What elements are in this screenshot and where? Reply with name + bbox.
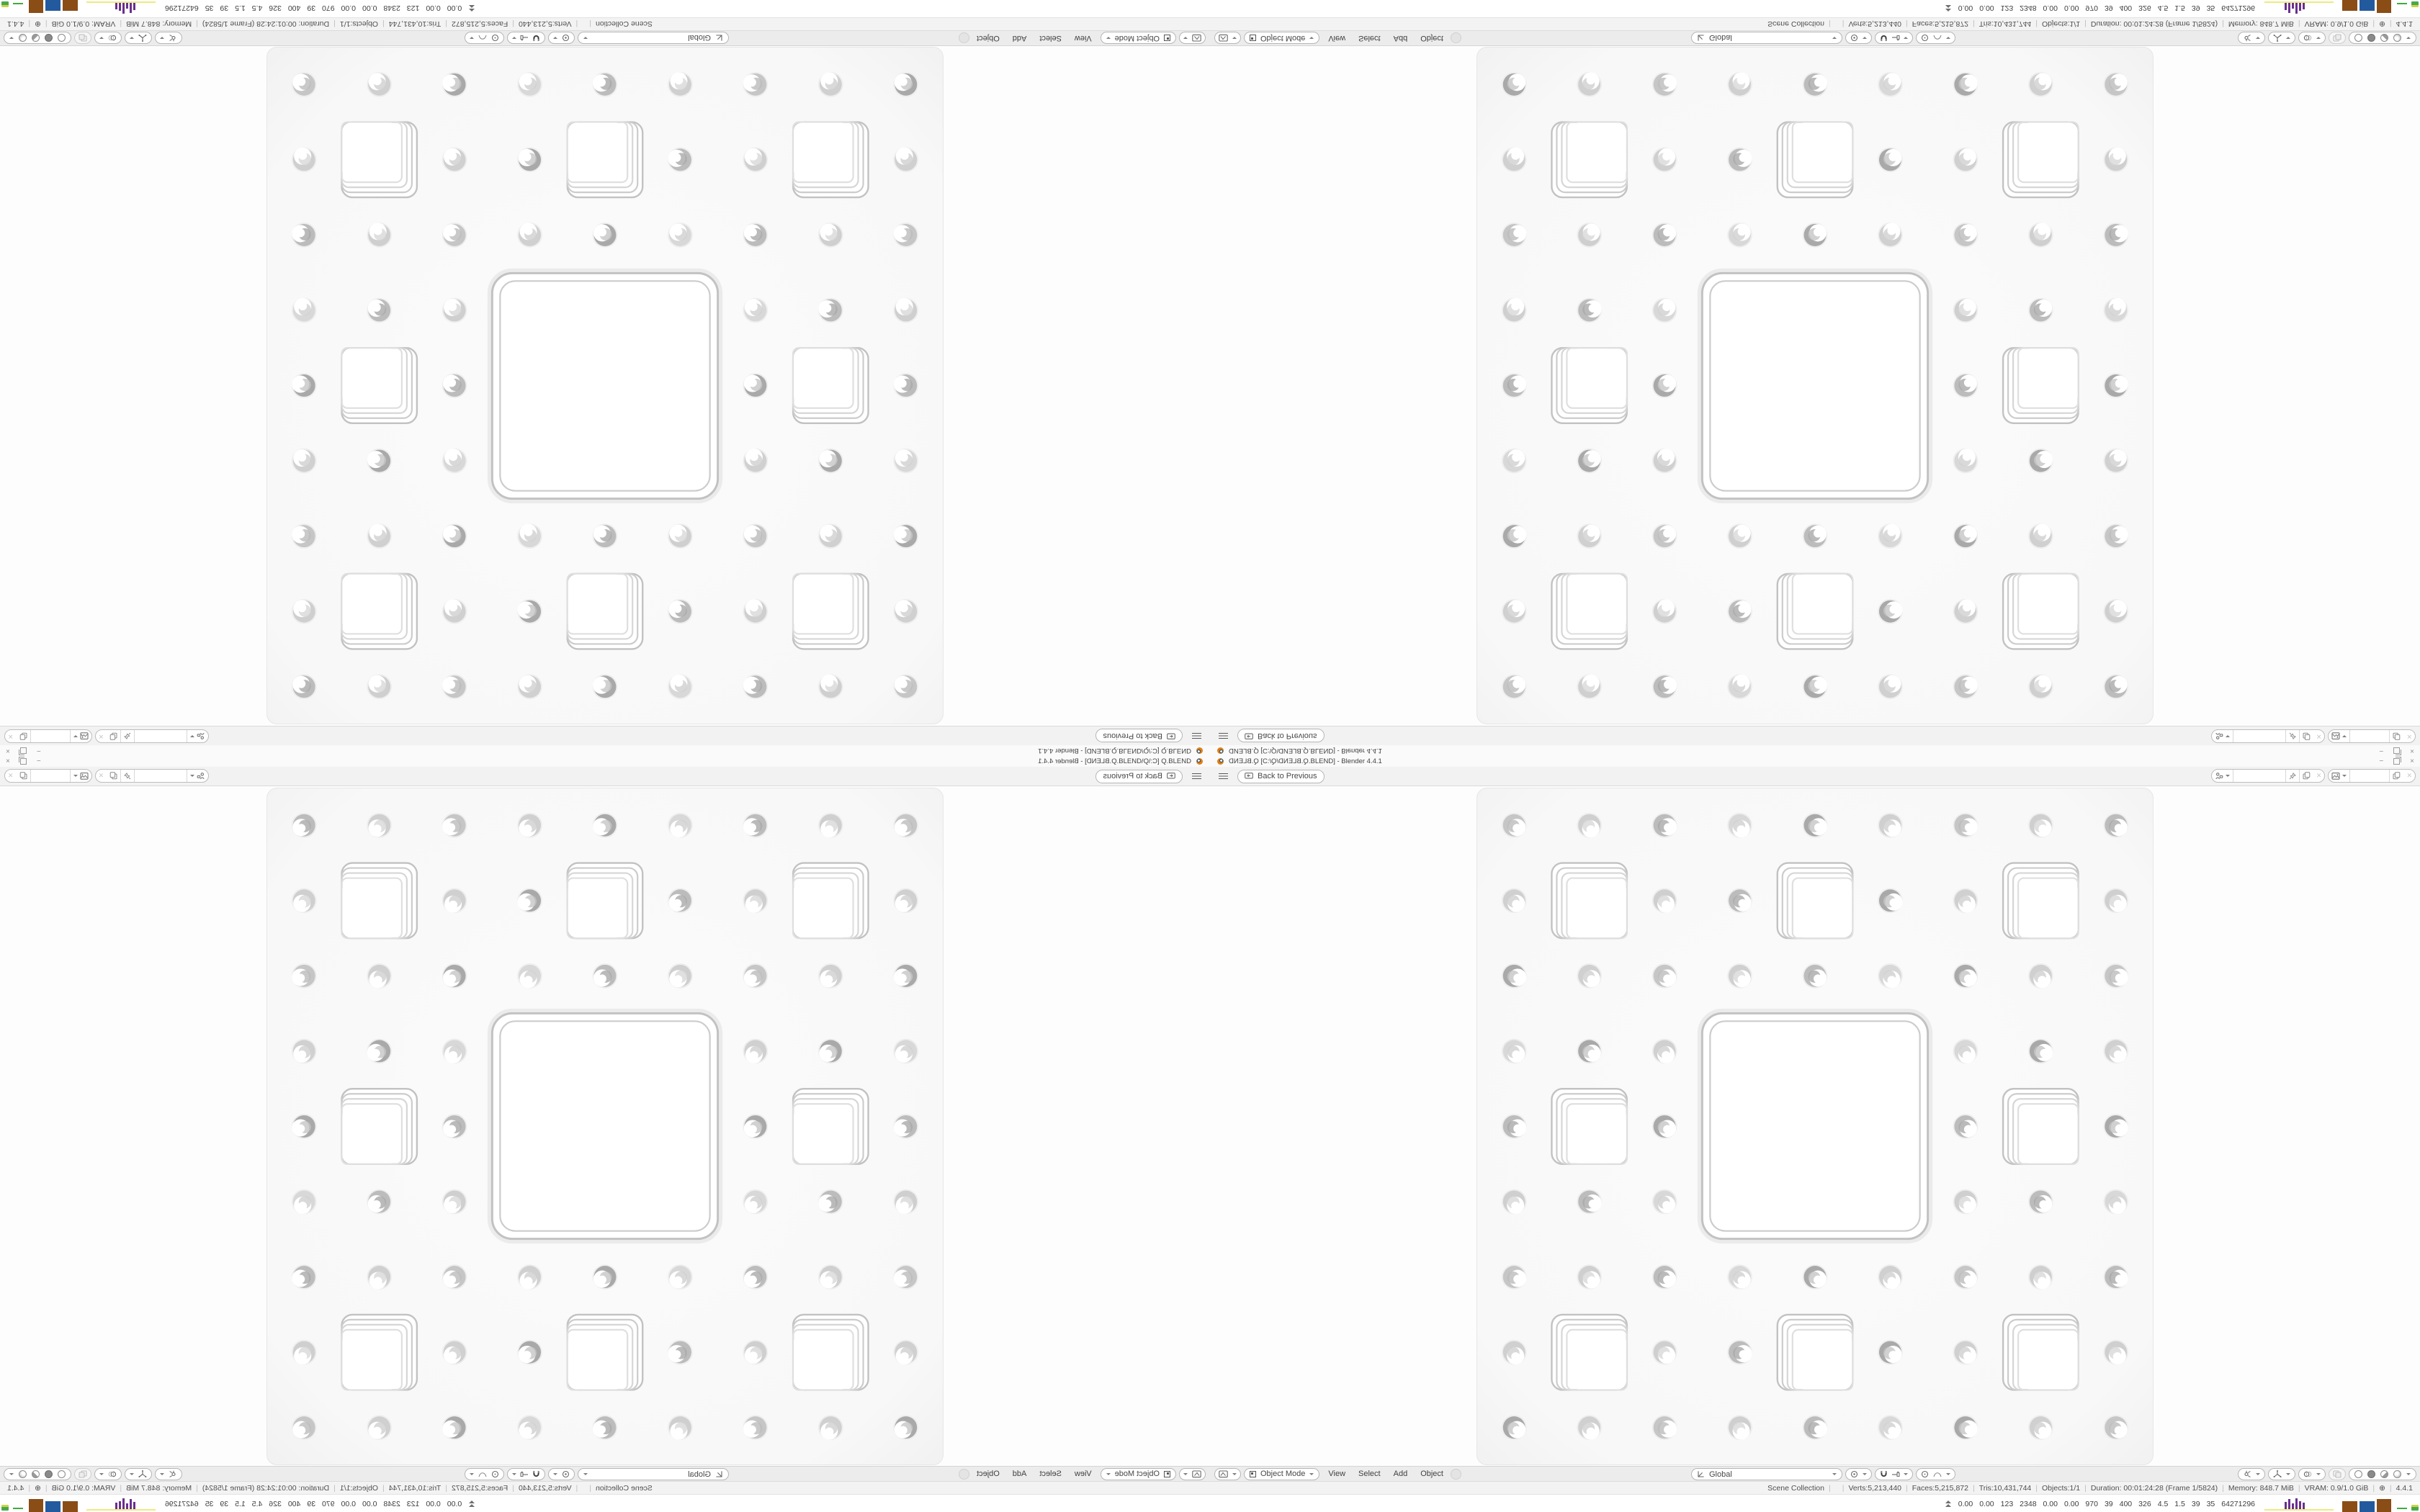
copy-icon — [2303, 732, 2311, 740]
monitor-value: 35 — [2207, 1500, 2215, 1508]
separator: | — [589, 20, 591, 29]
scene-browse-segment[interactable] — [2212, 730, 2233, 742]
remove-viewlayer-button[interactable]: ✕ — [2403, 732, 2415, 740]
shading-mode-switcher[interactable] — [4, 32, 71, 44]
taskbar-app-blocks — [29, 1499, 78, 1512]
scene-selector[interactable]: ✕ — [95, 769, 210, 783]
frametime-graph — [2264, 1497, 2334, 1512]
status-item: 4.4.1 — [2396, 1484, 2413, 1493]
separator: | — [45, 20, 48, 29]
scene-browse-segment[interactable] — [2212, 770, 2233, 782]
transform-orientation-dropdown[interactable]: Global — [1691, 1468, 1842, 1480]
menu-add[interactable]: Add — [1013, 34, 1027, 42]
back-to-previous-button[interactable]: Back to Previous — [1095, 729, 1183, 743]
status-item: Duration: 00:01:24:28 (Frame 1/5824) — [202, 20, 329, 29]
monitor-value: 1.5 — [2174, 4, 2185, 13]
orientation-axes-icon — [1697, 34, 1705, 42]
tray-mini-icon[interactable] — [1, 1, 9, 7]
xray-icon — [79, 1470, 87, 1478]
monitor-value: 0.00 — [2064, 1500, 2079, 1508]
overlays-dropdown[interactable] — [94, 32, 122, 44]
scene-icon — [197, 772, 205, 780]
3d-viewport[interactable] — [1210, 46, 2420, 726]
menu-hamburger-icon[interactable] — [1192, 773, 1201, 780]
rendered-shading-icon[interactable] — [2393, 34, 2401, 42]
xray-toggle[interactable] — [2329, 1468, 2346, 1480]
viewlayer-name-field[interactable] — [2349, 730, 2389, 742]
minimize-button[interactable]: − — [37, 747, 41, 755]
menger-sponge-render — [266, 47, 944, 724]
expand-up-icon[interactable] — [469, 1500, 475, 1507]
brown-block-icon[interactable] — [2342, 0, 2357, 11]
blue-block-icon[interactable] — [2359, 0, 2375, 11]
viewlayer-icon — [2331, 732, 2340, 741]
back-to-previous-button[interactable]: Back to Previous — [1237, 770, 1325, 783]
proportional-editing-controls[interactable] — [465, 32, 504, 44]
viewport-header: Object Mode ViewSelectAddObject Global — [0, 31, 1210, 46]
remove-viewlayer-button[interactable]: ✕ — [2403, 772, 2415, 780]
viewlayer-name-field[interactable] — [31, 730, 71, 742]
status-item: Faces:5,215,872 — [452, 1484, 508, 1493]
scene-name-field[interactable] — [2233, 770, 2285, 782]
chevron-down-icon — [2342, 775, 2347, 777]
viewlayer-icon — [80, 732, 89, 741]
snapping-controls[interactable] — [507, 32, 545, 44]
scene-name-field[interactable] — [135, 730, 187, 742]
tray-mini-icon[interactable] — [2411, 1, 2419, 7]
gizmo-axes-icon — [2273, 34, 2282, 42]
chevron-down-icon — [160, 1473, 164, 1475]
restore-button[interactable] — [20, 747, 27, 754]
status-item: Scene Collection — [596, 20, 653, 29]
menu-view[interactable]: View — [1075, 34, 1092, 42]
editor-3d-viewport-icon — [1219, 1470, 1228, 1478]
status-bar: Scene Collection||Verts:5,213,440|Faces:… — [0, 1481, 1210, 1494]
scene-icon — [197, 732, 205, 741]
monitor-value: 2348 — [383, 1500, 400, 1508]
copy-icon — [19, 732, 27, 740]
3d-viewport[interactable] — [1210, 786, 2420, 1466]
scene-browse-segment[interactable] — [187, 730, 208, 742]
copy-icon — [2303, 772, 2311, 780]
chevron-down-icon — [1863, 1473, 1867, 1475]
viewlayer-browse-segment[interactable] — [71, 730, 91, 742]
brown-block-icon[interactable] — [29, 1499, 43, 1512]
separator: | — [512, 1484, 514, 1493]
monitor-value: 123 — [2001, 4, 2014, 13]
menu-select[interactable]: Select — [1039, 34, 1062, 42]
monitor-value: 35 — [2207, 4, 2215, 13]
proportional-editing-controls[interactable] — [1916, 32, 1955, 44]
snapping-controls[interactable] — [1875, 32, 1913, 44]
mode-selector[interactable]: Object Mode — [1101, 1468, 1176, 1480]
brown-block-icon[interactable] — [29, 0, 43, 13]
shading-mode-switcher[interactable] — [2349, 1468, 2416, 1480]
monitor-value: 64271296 — [165, 4, 199, 13]
editor-type-button[interactable] — [1214, 1468, 1241, 1480]
quadrant-top-left-mirrored: Q.BLEND [C:\Q\Q.BLEND.BLEND] - Blender 4… — [0, 0, 1210, 756]
back-to-previous-button[interactable]: Back to Previous — [1237, 729, 1325, 743]
snap-target-icon — [1891, 35, 1900, 42]
gizmo-visibility-icon — [169, 34, 177, 42]
viewlayer-name-field[interactable] — [2349, 770, 2389, 782]
quadrant-bottom-right: Q.BLEND [C:\Q\Q.BLEND.BLEND] - Blender 4… — [1210, 756, 2420, 1512]
separator: | — [576, 20, 578, 29]
show-gizmo-toggle[interactable] — [155, 1468, 182, 1480]
separator: | — [589, 1484, 591, 1493]
viewlayer-selector[interactable]: ✕ — [4, 769, 92, 783]
proportional-editing-controls[interactable] — [465, 1468, 504, 1480]
close-button[interactable]: × — [6, 747, 10, 755]
monitor-value: 35 — [205, 1500, 214, 1508]
restore-button[interactable] — [2393, 747, 2400, 754]
monitor-value: 0.00 — [426, 1500, 440, 1508]
monitor-value: 2348 — [383, 4, 400, 13]
editor-type-button[interactable] — [1179, 1468, 1206, 1480]
xray-toggle[interactable] — [2329, 32, 2346, 44]
proportional-editing-controls[interactable] — [1916, 1468, 1955, 1480]
rendered-shading-icon[interactable] — [2393, 1470, 2401, 1478]
wireframe-shading-icon[interactable] — [2354, 1470, 2362, 1478]
overlays-dropdown[interactable] — [2298, 32, 2326, 44]
pivot-point-dropdown[interactable] — [1845, 32, 1872, 44]
menu-select[interactable]: Select — [1039, 1470, 1062, 1478]
menu-view[interactable]: View — [1075, 1470, 1092, 1478]
editor-type-button[interactable] — [1214, 32, 1241, 45]
taskbar-app-blocks — [2342, 1499, 2391, 1512]
restore-button[interactable] — [2393, 758, 2400, 765]
rendered-shading-icon[interactable] — [19, 1470, 27, 1478]
show-gizmo-toggle[interactable] — [2238, 32, 2265, 44]
status-item: Faces:5,215,872 — [1912, 20, 1968, 29]
transform-orientation-dropdown[interactable]: Global — [578, 32, 729, 44]
back-screen-icon — [1245, 773, 1253, 780]
scene-pin-button[interactable] — [121, 770, 135, 782]
menu-hamburger-icon[interactable] — [1219, 773, 1228, 780]
status-item: Memory: 848.7 MiB — [2228, 1484, 2294, 1493]
separator: | — [1829, 1484, 1831, 1493]
disabled-tool-icon — [1451, 33, 1461, 44]
status-item: Tris:10,431,744 — [1979, 1484, 2032, 1493]
viewlayer-selector[interactable]: ✕ — [2328, 769, 2416, 783]
new-scene-button[interactable] — [107, 770, 121, 782]
chevron-down-icon — [99, 1473, 104, 1475]
chevron-down-icon — [1183, 1473, 1188, 1475]
scene-name-field[interactable] — [2233, 730, 2285, 742]
pivot-icon — [562, 34, 570, 42]
monitor-value: 64271296 — [2221, 4, 2255, 13]
menu-add[interactable]: Add — [1394, 34, 1408, 42]
material-preview-shading-icon[interactable] — [2380, 34, 2388, 42]
blender-logo-icon — [1217, 758, 1224, 765]
menu-add[interactable]: Add — [1013, 1470, 1027, 1478]
separator: | — [196, 1484, 198, 1493]
monitor-value: 0.00 — [341, 4, 356, 13]
menu-select[interactable]: Select — [1358, 34, 1381, 42]
show-gizmo-toggle[interactable] — [2238, 1468, 2265, 1480]
menu-hamburger-icon[interactable] — [1219, 733, 1228, 739]
scene-pin-button[interactable] — [121, 730, 135, 742]
close-button[interactable]: × — [6, 758, 10, 765]
monitor-value: 4.5 — [252, 4, 263, 13]
window-title-bar: Q.BLEND [C:\Q\Q.BLEND.BLEND] - Blender 4… — [0, 756, 1210, 767]
mode-selector[interactable]: Object Mode — [1101, 32, 1176, 45]
pivot-point-dropdown[interactable] — [548, 1468, 575, 1480]
status-bar: Scene Collection||Verts:5,213,440|Faces:… — [0, 18, 1210, 31]
overlays-icon — [108, 1470, 117, 1478]
monitor-value: 123 — [2001, 1500, 2014, 1508]
chevron-down-icon — [1904, 1473, 1908, 1475]
minimize-button[interactable]: − — [37, 758, 41, 765]
chevron-down-icon — [2406, 37, 2411, 39]
purple-histogram — [2285, 3, 2305, 14]
viewlayer-selector[interactable]: ✕ — [4, 729, 92, 743]
status-item: Verts:5,213,440 — [1848, 20, 1901, 29]
scene-selector[interactable]: ✕ — [95, 729, 210, 743]
solid-shading-icon[interactable] — [2367, 34, 2375, 42]
purple-histogram — [2285, 1498, 2305, 1509]
menu-object[interactable]: Object — [977, 1470, 1000, 1478]
brown-block-icon[interactable] — [63, 1501, 78, 1512]
separator: | — [45, 1484, 48, 1493]
chevron-down-icon — [1832, 37, 1837, 39]
separator: | — [1829, 20, 1831, 29]
taskbar-app-blocks — [29, 0, 78, 13]
magnet-icon — [1880, 34, 1888, 42]
back-to-previous-button[interactable]: Back to Previous — [1095, 770, 1183, 783]
new-viewlayer-button[interactable] — [17, 770, 31, 782]
monitor-value: 35 — [205, 4, 214, 13]
menu-view[interactable]: View — [1328, 34, 1345, 42]
minimize-button[interactable]: − — [2379, 758, 2383, 765]
disabled-tool-icon — [1451, 1469, 1461, 1480]
blue-block-icon[interactable] — [45, 0, 60, 11]
orientation-axes-icon — [1697, 1470, 1705, 1478]
menu-object[interactable]: Object — [977, 34, 1000, 42]
monitor-value: 4.5 — [2158, 4, 2169, 13]
remove-viewlayer-button[interactable]: ✕ — [5, 772, 17, 780]
expand-up-icon[interactable] — [469, 5, 475, 12]
gizmos-dropdown[interactable] — [125, 32, 152, 44]
monitor-value: 0.00 — [426, 4, 440, 13]
falloff-curve-icon — [478, 1471, 487, 1477]
separator: | — [2390, 1484, 2392, 1493]
separator: | — [576, 1484, 578, 1493]
menu-select[interactable]: Select — [1358, 1470, 1381, 1478]
mode-selector[interactable]: Object Mode — [1244, 1468, 1319, 1480]
brown-block-icon[interactable] — [2342, 1501, 2357, 1512]
chevron-down-icon — [190, 735, 194, 737]
snapping-controls[interactable] — [507, 1468, 545, 1480]
chevron-down-icon — [1832, 1473, 1837, 1475]
unlink-scene-button[interactable]: ✕ — [96, 732, 107, 740]
tray-mini-icon[interactable] — [2411, 1505, 2419, 1511]
separator: | — [1973, 1484, 1975, 1493]
viewlayer-browse-segment[interactable] — [2329, 770, 2349, 782]
tray-mini-icon[interactable] — [1, 1505, 9, 1511]
network-icon: ⊕ — [2379, 20, 2385, 29]
back-screen-icon — [1245, 732, 1253, 739]
monitor-value: 39 — [307, 4, 315, 13]
monitor-value: 39 — [2105, 1500, 2113, 1508]
monitor-value: 39 — [2192, 1500, 2200, 1508]
chevron-down-icon — [130, 1473, 134, 1475]
scene-selector[interactable]: ✕ — [2211, 769, 2326, 783]
viewlayer-name-field[interactable] — [31, 770, 71, 782]
blue-block-icon[interactable] — [2359, 1501, 2375, 1512]
monitor-value: 970 — [322, 4, 335, 13]
window-title-bar: Q.BLEND [C:\Q\Q.BLEND.BLEND] - Blender 4… — [1210, 745, 2420, 756]
gizmos-dropdown[interactable] — [125, 1468, 152, 1480]
brown-block-icon[interactable] — [2377, 0, 2391, 13]
copy-icon — [109, 772, 117, 780]
editor-3d-viewport-icon — [1192, 1470, 1201, 1478]
orientation-axes-icon — [715, 1470, 723, 1478]
copy-icon — [19, 772, 27, 780]
menger-sponge-render — [1476, 47, 2154, 724]
menu-add[interactable]: Add — [1394, 1470, 1408, 1478]
shading-mode-switcher[interactable] — [2349, 32, 2416, 44]
status-item: Scene Collection — [596, 1484, 653, 1493]
overlays-dropdown[interactable] — [2298, 1468, 2326, 1480]
pivot-point-dropdown[interactable] — [1845, 1468, 1872, 1480]
chevron-down-icon — [2342, 735, 2347, 737]
scene-name-field[interactable] — [135, 770, 187, 782]
shading-mode-switcher[interactable] — [4, 1468, 71, 1480]
close-button[interactable]: × — [2410, 758, 2414, 765]
system-monitor-bar: 0.000.0012323480.000.00970394003264.51.5… — [1210, 0, 2420, 18]
menger-sponge-render — [1476, 788, 2154, 1465]
close-button[interactable]: × — [2410, 747, 2414, 755]
separator: | — [1973, 20, 1975, 29]
minimize-button[interactable]: − — [2379, 747, 2383, 755]
viewlayer-browse-segment[interactable] — [2329, 730, 2349, 742]
status-item: Objects:1/1 — [340, 1484, 378, 1493]
separator: | — [2084, 1484, 2087, 1493]
status-item: VRAM: 0.9/1.0 GiB — [2305, 1484, 2369, 1493]
transform-orientation-dropdown[interactable]: Global — [578, 1468, 729, 1480]
menger-sponge-render — [266, 788, 944, 1465]
back-screen-icon — [1167, 732, 1175, 739]
separator: | — [28, 20, 30, 29]
3d-viewport[interactable] — [0, 786, 1210, 1466]
scene-pin-button[interactable] — [2285, 770, 2299, 782]
new-scene-button[interactable] — [107, 730, 121, 742]
wireframe-shading-icon[interactable] — [2354, 34, 2362, 42]
menu-hamburger-icon[interactable] — [1192, 733, 1201, 739]
system-monitor-bar: 0.000.0012323480.000.00970394003264.51.5… — [0, 1494, 1210, 1512]
material-preview-shading-icon[interactable] — [32, 1470, 40, 1478]
solid-shading-icon[interactable] — [45, 1470, 53, 1478]
frametime-graph — [2264, 0, 2334, 15]
unlink-scene-button[interactable]: ✕ — [2313, 732, 2325, 740]
editor-type-button[interactable] — [1179, 32, 1206, 45]
scene-pin-button[interactable] — [2285, 730, 2299, 742]
remove-viewlayer-button[interactable]: ✕ — [5, 732, 17, 740]
blender-logo-icon — [1217, 747, 1224, 754]
new-viewlayer-button[interactable] — [2389, 730, 2403, 742]
blender-window: Q.BLEND [C:\Q\Q.BLEND.BLEND] - Blender 4… — [0, 0, 1210, 756]
chevron-down-icon — [1232, 1473, 1237, 1475]
scene-selector[interactable]: ✕ — [2211, 729, 2326, 743]
pivot-point-dropdown[interactable] — [548, 32, 575, 44]
brown-block-icon[interactable] — [63, 0, 78, 11]
chevron-down-icon — [1106, 37, 1111, 40]
gizmos-dropdown[interactable] — [2268, 32, 2295, 44]
viewlayer-browse-segment[interactable] — [71, 770, 91, 782]
restore-button[interactable] — [20, 758, 27, 765]
new-viewlayer-button[interactable] — [2389, 770, 2403, 782]
magnet-icon — [1880, 1470, 1888, 1478]
viewport-menus: ViewSelectAddObject — [1328, 34, 1443, 42]
material-preview-shading-icon[interactable] — [2380, 1470, 2388, 1478]
separator: | — [2390, 20, 2392, 29]
unlink-scene-button[interactable]: ✕ — [2313, 772, 2325, 780]
mode-selector[interactable]: Object Mode — [1244, 32, 1319, 45]
xray-toggle[interactable] — [74, 1468, 91, 1480]
chevron-down-icon — [1863, 37, 1867, 39]
gizmos-dropdown[interactable] — [2268, 1468, 2295, 1480]
new-scene-button[interactable] — [2299, 770, 2313, 782]
solid-shading-icon[interactable] — [2367, 1470, 2375, 1478]
unlink-scene-button[interactable]: ✕ — [96, 772, 107, 780]
screen-composite: Q.BLEND [C:\Q\Q.BLEND.BLEND] - Blender 4… — [0, 0, 2420, 1512]
separator: | — [445, 1484, 447, 1493]
menu-object[interactable]: Object — [1420, 1470, 1443, 1478]
wireframe-shading-icon[interactable] — [58, 1470, 66, 1478]
overlays-dropdown[interactable] — [94, 1468, 122, 1480]
status-item: Memory: 848.7 MiB — [126, 1484, 192, 1493]
expand-up-icon[interactable] — [1945, 5, 1951, 12]
separator: | — [2035, 20, 2038, 29]
solid-shading-icon[interactable] — [45, 34, 53, 42]
show-gizmo-toggle[interactable] — [155, 32, 182, 44]
scene-browse-segment[interactable] — [187, 770, 208, 782]
blender-window: Q.BLEND [C:\Q\Q.BLEND.BLEND] - Blender 4… — [0, 756, 1210, 1512]
object-mode-icon — [1164, 1471, 1170, 1477]
expand-up-icon[interactable] — [1945, 1500, 1951, 1507]
system-monitor-values: 0.000.0012323480.000.00970394003264.51.5… — [1958, 4, 2262, 13]
object-mode-icon — [1164, 35, 1170, 42]
blue-block-icon[interactable] — [45, 1501, 60, 1512]
separator: | — [1906, 20, 1908, 29]
snapping-controls[interactable] — [1875, 1468, 1913, 1480]
status-item: Memory: 848.7 MiB — [126, 20, 192, 29]
status-bar: Scene Collection||Verts:5,213,440|Faces:… — [1210, 18, 2420, 31]
xray-icon — [2333, 1470, 2341, 1478]
rendered-shading-icon[interactable] — [19, 34, 27, 42]
xray-icon — [2333, 34, 2341, 42]
viewlayer-selector[interactable]: ✕ — [2328, 729, 2416, 743]
brown-block-icon[interactable] — [2377, 1499, 2391, 1512]
status-item: VRAM: 0.9/1.0 GiB — [2305, 20, 2369, 29]
monitor-value: 39 — [2105, 4, 2113, 13]
menu-view[interactable]: View — [1328, 1470, 1345, 1478]
system-monitor-graphs — [2264, 1495, 2419, 1512]
system-monitor-values: 0.000.0012323480.000.00970394003264.51.5… — [158, 1500, 462, 1508]
new-scene-button[interactable] — [2299, 730, 2313, 742]
menu-object[interactable]: Object — [1420, 34, 1443, 42]
material-preview-shading-icon[interactable] — [32, 34, 40, 42]
wireframe-shading-icon[interactable] — [58, 34, 66, 42]
status-item: 4.4.1 — [7, 1484, 24, 1493]
separator: | — [2222, 20, 2224, 29]
3d-viewport[interactable] — [0, 46, 1210, 726]
new-viewlayer-button[interactable] — [17, 730, 31, 742]
status-bar: Scene Collection||Verts:5,213,440|Faces:… — [1210, 1481, 2420, 1494]
xray-toggle[interactable] — [74, 32, 91, 44]
transform-orientation-dropdown[interactable]: Global — [1691, 32, 1842, 44]
